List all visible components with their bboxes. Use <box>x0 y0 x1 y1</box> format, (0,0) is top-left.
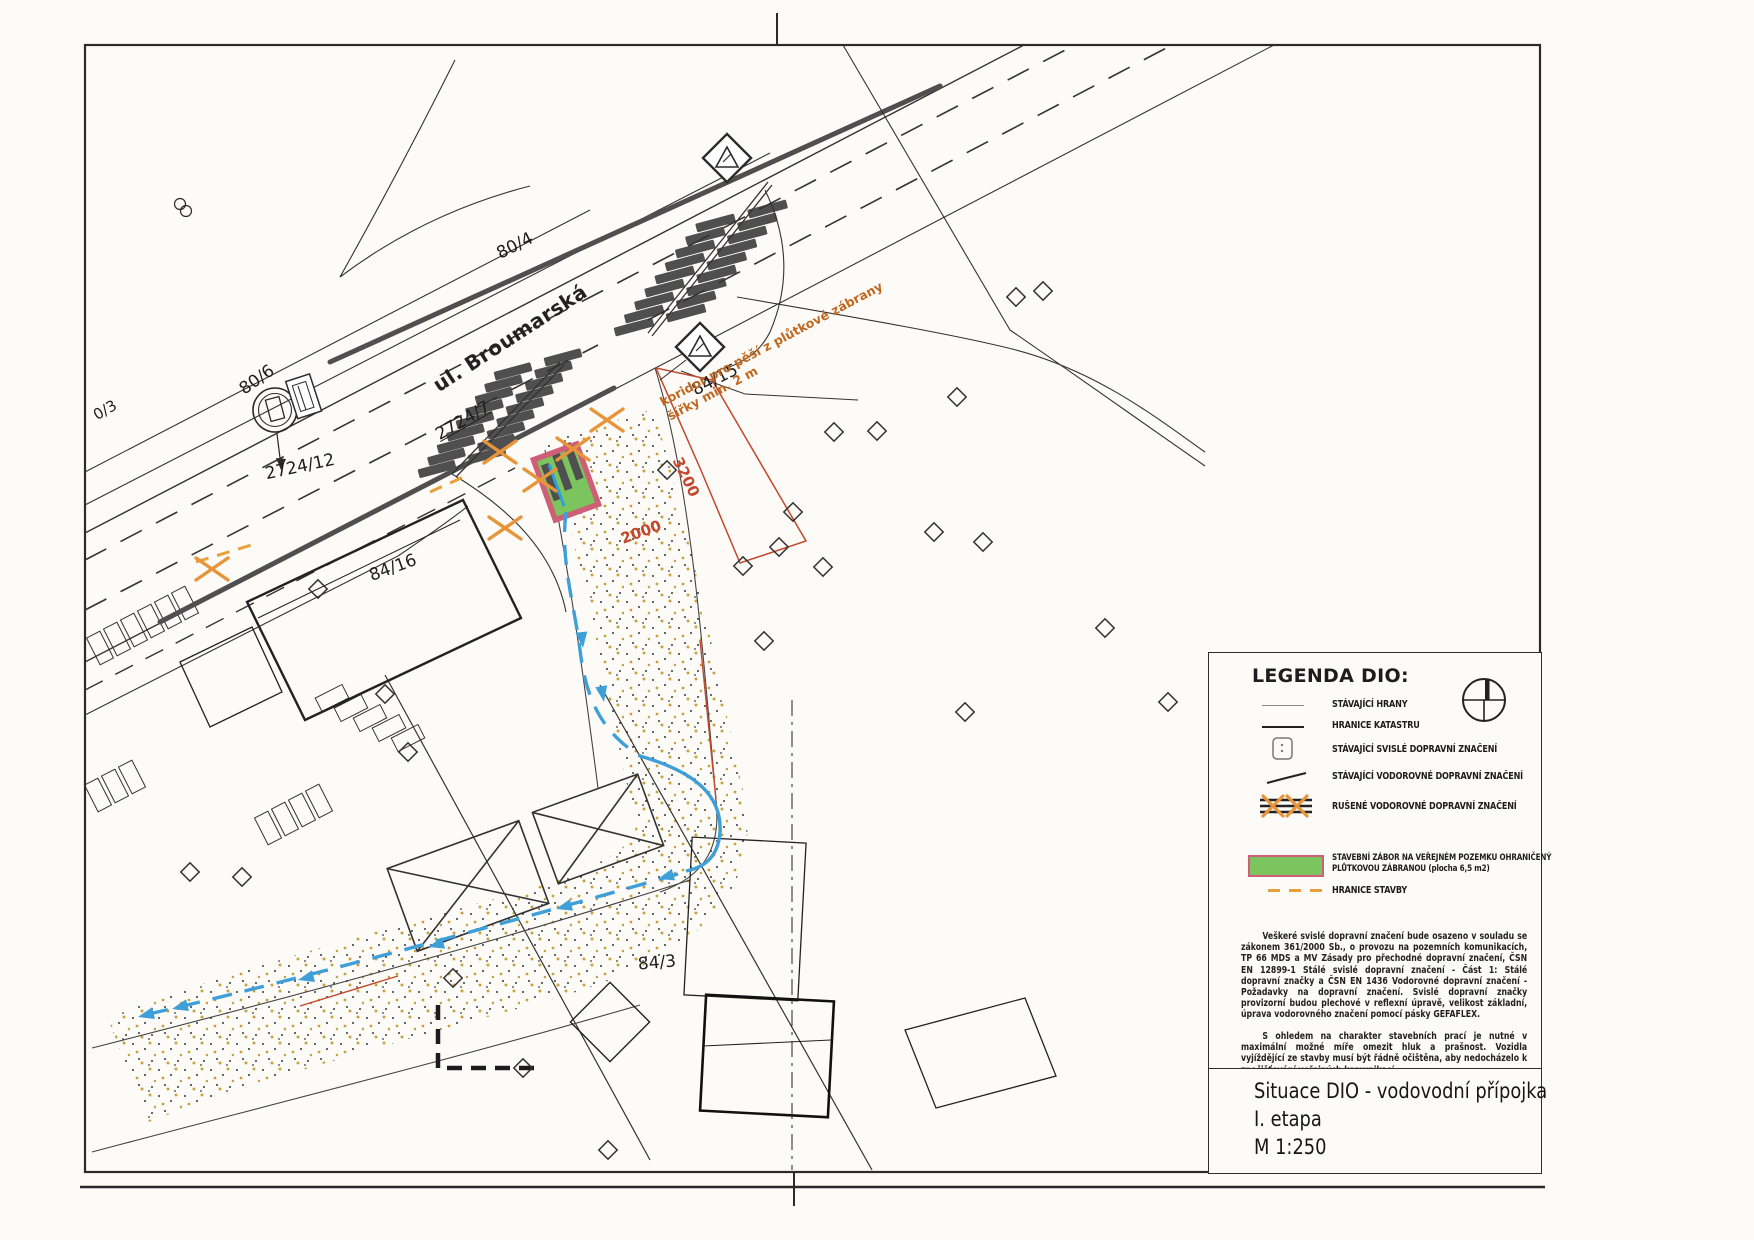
north-survey-symbol-icon <box>1460 676 1508 724</box>
legend-item-label: STÁVAJÍCÍ SVISLÉ DOPRAVNÍ ZNAČENÍ <box>1332 744 1497 755</box>
legend-item-label: HRANICE STAVBY <box>1332 885 1407 896</box>
legend-box: LEGENDA DIO: STÁVAJÍCÍ HRANY HRANICE KAT… <box>1208 652 1542 1070</box>
legend-item-label: STÁVAJÍCÍ VODOROVNÉ DOPRAVNÍ ZNAČENÍ <box>1332 771 1523 782</box>
utility-symbol-icon <box>175 199 192 217</box>
title-block: Situace DIO - vodovodní přípojka I. etap… <box>1208 1068 1542 1174</box>
legend-symbol-horiz-marking-icon <box>1264 770 1310 786</box>
legend-symbol-sign-square-icon <box>1271 736 1295 762</box>
legend-item-label: HRANICE KATASTRU <box>1332 720 1420 731</box>
drawing-sheet: 80/4 80/6 0/3 2724/12 2724/7 84/15 84/16… <box>0 0 1754 1240</box>
drawing-stage: I. etapa <box>1254 1105 1547 1133</box>
legend-symbol-site-boundary <box>1268 889 1324 892</box>
legend-item-label: STAVEBNÍ ZÁBOR NA VEŘEJNÉM POZEMKU OHRAN… <box>1332 853 1596 876</box>
parcel-label: 84/3 <box>637 951 677 974</box>
legend-symbol-removed-marking-icon <box>1257 794 1315 820</box>
legend-note-1: Veškeré svislé dopravní značení bude osa… <box>1241 931 1527 1021</box>
drawing-title: Situace DIO - vodovodní přípojka <box>1254 1077 1547 1105</box>
legend-symbol-solid-line <box>1262 726 1304 728</box>
legend-item-label: STÁVAJÍCÍ HRANY <box>1332 699 1407 710</box>
legend-symbol-construction-zone <box>1248 855 1324 877</box>
legend-symbol-thin-line <box>1262 705 1304 706</box>
drawing-scale: M 1:250 <box>1254 1133 1547 1161</box>
legend-item-label: RUŠENÉ VODOROVNÉ DOPRAVNÍ ZNAČENÍ <box>1332 801 1517 812</box>
legend-title: LEGENDA DIO: <box>1252 665 1409 687</box>
